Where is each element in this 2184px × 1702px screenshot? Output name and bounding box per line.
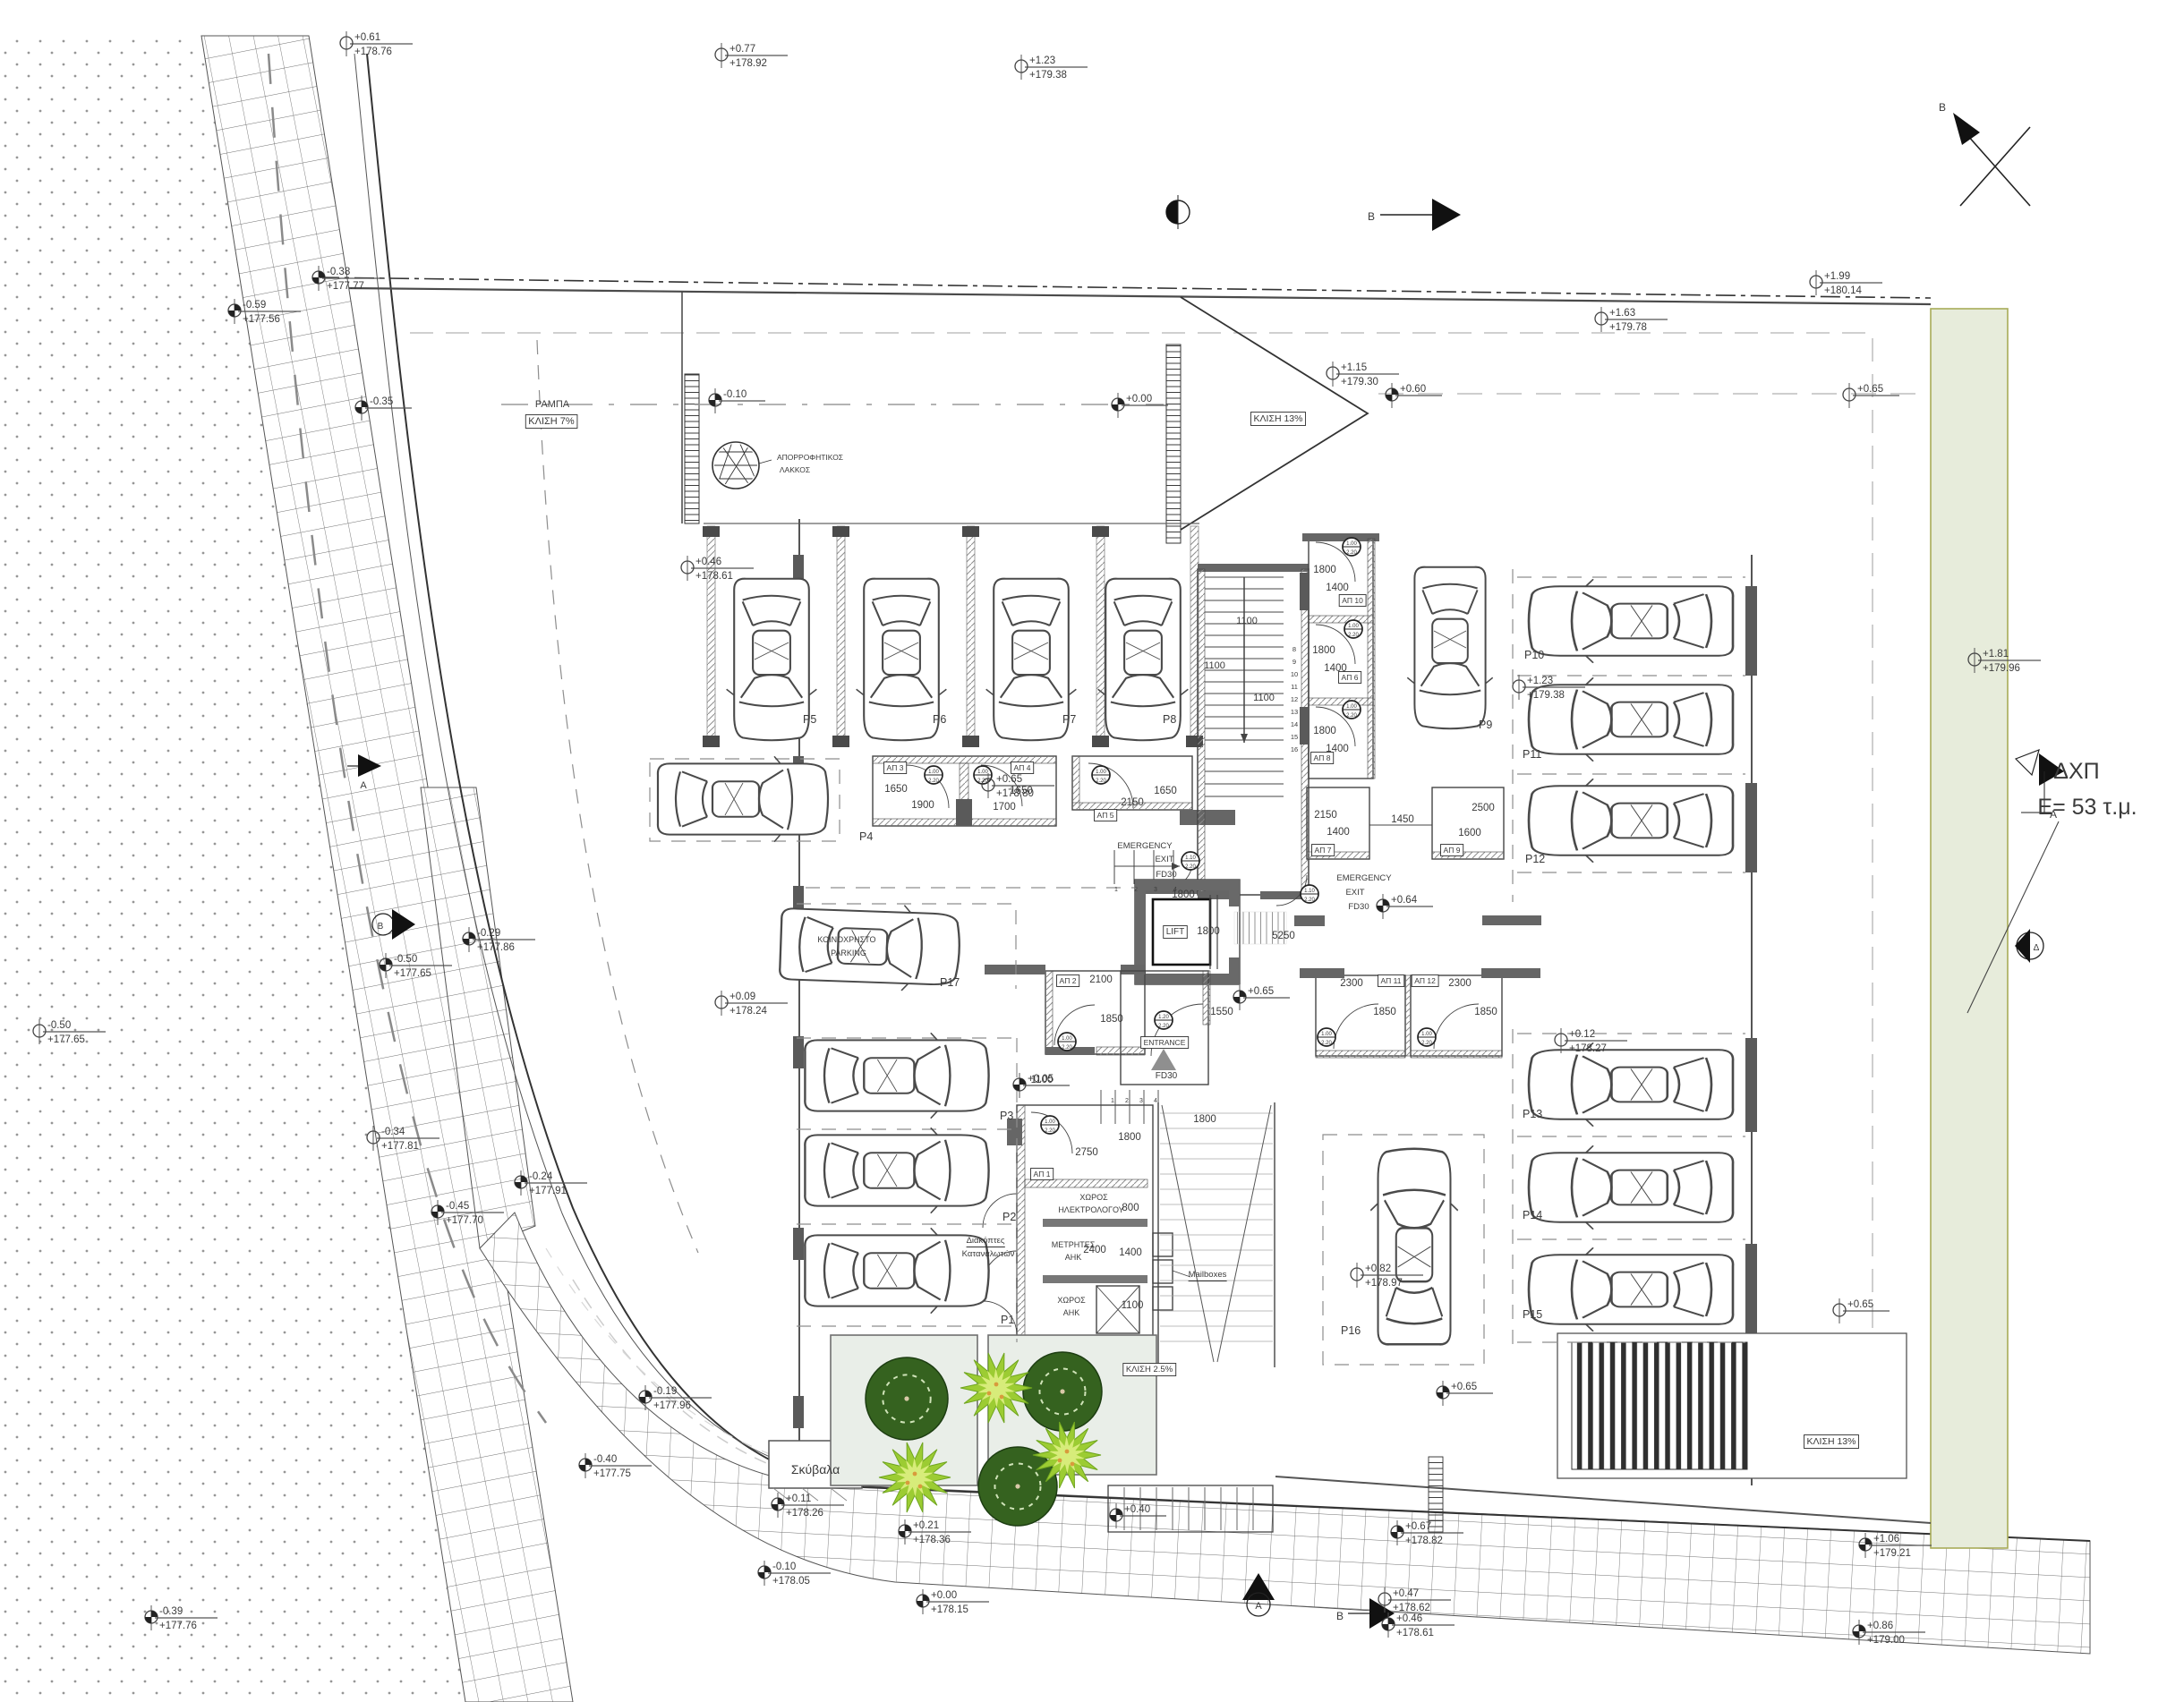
svg-text:A: A xyxy=(360,780,367,791)
plan-label: A xyxy=(360,780,367,791)
building-top-edge xyxy=(349,288,1931,304)
plan-label: 4 xyxy=(1173,887,1177,893)
svg-text:2300: 2300 xyxy=(1448,978,1472,989)
plan-label: ΧΩΡΟΣ xyxy=(1079,1193,1108,1202)
plan-label: ΑΠ 4 xyxy=(1011,762,1034,774)
tree-icon xyxy=(978,1447,1057,1526)
section-flag-top-b xyxy=(1380,199,1461,231)
parking-spot-label: P6 xyxy=(933,713,946,726)
plan-label: 1700 xyxy=(993,802,1016,813)
level-value: -0.39 xyxy=(159,1606,183,1617)
level-elevation: +178.61 xyxy=(695,571,733,582)
svg-text:ΚΛΙΣΗ 13%: ΚΛΙΣΗ 13% xyxy=(1807,1436,1856,1447)
svg-text:1650: 1650 xyxy=(1154,786,1177,796)
svg-text:ΑΠ 10: ΑΠ 10 xyxy=(1342,596,1363,605)
svg-text:Α: Α xyxy=(2050,808,2057,821)
svg-text:ΑΠ 12: ΑΠ 12 xyxy=(1414,976,1436,985)
svg-text:2300: 2300 xyxy=(1340,978,1363,989)
level-value: +0.47 xyxy=(1393,1588,1419,1599)
level-marker: +0.00+178.15 xyxy=(917,1589,989,1615)
svg-text:800: 800 xyxy=(1122,1203,1139,1213)
parked-car xyxy=(1529,579,1733,662)
parking-spot-label: P8 xyxy=(1163,713,1176,726)
plan-label: ΚΛΙΣΗ 13% xyxy=(1251,413,1306,426)
level-elevation: +177.65 xyxy=(394,968,431,979)
level-marker: -0.10 xyxy=(709,388,765,413)
tree-icon xyxy=(1023,1352,1102,1431)
svg-text:2.20: 2.20 xyxy=(1346,550,1357,556)
svg-text:1450: 1450 xyxy=(1391,814,1414,825)
svg-text:ΧΩΡΟΣ: ΧΩΡΟΣ xyxy=(1057,1296,1086,1305)
plan-label: Σκύβαλα xyxy=(791,1462,840,1476)
svg-text:Β: Β xyxy=(1939,101,1946,114)
svg-text:1.10: 1.10 xyxy=(1185,855,1196,861)
svg-text:1600: 1600 xyxy=(1458,828,1481,838)
parking-spot-label: P14 xyxy=(1523,1209,1542,1221)
svg-text:1800: 1800 xyxy=(1313,565,1336,575)
tree-icon xyxy=(866,1357,948,1440)
door-size-marker: 1.002.20 xyxy=(1343,701,1361,719)
svg-text:2: 2 xyxy=(1125,1098,1129,1104)
level-value: -0.38 xyxy=(327,267,350,277)
svg-text:ΑΗΚ: ΑΗΚ xyxy=(1065,1253,1082,1262)
plan-label: FD30 xyxy=(1156,870,1176,880)
level-value: +0.11 xyxy=(786,1494,811,1504)
plan-label: 3 xyxy=(1139,1098,1143,1104)
door-size-marker: 1.002.20 xyxy=(1344,620,1362,638)
svg-text:ΡΑΜΠΑ: ΡΑΜΠΑ xyxy=(535,399,570,410)
svg-text:1550: 1550 xyxy=(1210,1007,1233,1017)
level-marker: +0.61+178.76 xyxy=(340,31,413,57)
plan-label: 3 xyxy=(1154,887,1157,893)
level-elevation: +179.00 xyxy=(1867,1635,1905,1646)
parked-car xyxy=(805,1228,988,1313)
plan-label: FD30 xyxy=(1348,902,1369,912)
plan-label: 16 xyxy=(1291,745,1298,753)
plan-label: 1650 xyxy=(1010,786,1033,796)
parking-spot-label: P3 xyxy=(1000,1110,1013,1122)
level-value: -0.40 xyxy=(593,1454,617,1465)
parked-car xyxy=(658,756,828,841)
svg-text:1400: 1400 xyxy=(1326,583,1349,593)
level-elevation: +178.82 xyxy=(1405,1536,1443,1546)
plan-label: B xyxy=(1368,210,1375,223)
level-marker: +0.65 xyxy=(1833,1298,1890,1323)
svg-text:ΚΛΙΣΗ 7%: ΚΛΙΣΗ 7% xyxy=(528,416,575,427)
level-elevation: +180.14 xyxy=(1824,285,1862,296)
svg-text:13: 13 xyxy=(1291,708,1298,716)
svg-text:1.00: 1.00 xyxy=(928,770,939,775)
plan-label: EMERGENCY xyxy=(1336,873,1392,883)
plan-label: 1550 xyxy=(1210,1007,1233,1017)
svg-text:ΚΛΙΣΗ 2.5%: ΚΛΙΣΗ 2.5% xyxy=(1126,1365,1173,1374)
svg-text:1100: 1100 xyxy=(1236,616,1258,626)
floor-plan-sheet: 1.002.201.002.201.002.201.002.201.002.20… xyxy=(0,0,2184,1702)
svg-text:2500: 2500 xyxy=(1472,803,1495,813)
svg-text:1800: 1800 xyxy=(1313,726,1336,736)
plan-label: 1850 xyxy=(1373,1007,1396,1017)
svg-text:ΑΠ 9: ΑΠ 9 xyxy=(1444,846,1461,855)
svg-text:1800: 1800 xyxy=(1312,645,1335,656)
level-value: +1.99 xyxy=(1824,271,1850,282)
pit-leader xyxy=(759,460,772,464)
svg-text:2400: 2400 xyxy=(1083,1245,1106,1255)
level-elevation: +177.76 xyxy=(159,1621,197,1631)
svg-text:A: A xyxy=(1255,1601,1262,1612)
svg-text:ΑΠ 4: ΑΠ 4 xyxy=(1014,763,1031,772)
parked-car xyxy=(1529,779,1733,862)
plan-label: 2500 xyxy=(1472,803,1495,813)
level-value: +0.60 xyxy=(1400,384,1426,395)
plan-label: 1800 xyxy=(1197,926,1220,937)
plan-label: 1 xyxy=(1111,1098,1114,1104)
level-marker: +1.15+179.30 xyxy=(1327,362,1399,387)
plan-label: 1100 xyxy=(1204,660,1225,671)
level-elevation: +179.78 xyxy=(1609,322,1647,333)
plan-label: ΗΛΕΚΤΡΟΛΟΓΟΥ xyxy=(1058,1205,1123,1214)
level-marker: +1.63+179.78 xyxy=(1595,307,1668,333)
level-value: -0.50 xyxy=(394,954,417,965)
level-value: +0.61 xyxy=(354,32,380,43)
svg-text:1.00: 1.00 xyxy=(1348,624,1359,629)
svg-text:ΑΠ 11: ΑΠ 11 xyxy=(1381,976,1402,985)
level-value: -0.34 xyxy=(381,1127,405,1137)
parking-spot-label: P1 xyxy=(1001,1314,1014,1326)
svg-text:1400: 1400 xyxy=(1119,1247,1142,1258)
plan-label: 1100 xyxy=(1031,1075,1054,1085)
plan-label: 1650 xyxy=(884,784,908,795)
svg-text:1.00: 1.00 xyxy=(1045,1119,1055,1125)
svg-text:1650: 1650 xyxy=(884,784,908,795)
stair-core xyxy=(1198,564,1309,899)
plan-label: ΑΠ 2 xyxy=(1057,975,1079,987)
plan-label: ΑΠ 9 xyxy=(1441,845,1463,856)
svg-text:ΛΑΚΚΟΣ: ΛΑΚΚΟΣ xyxy=(780,465,810,474)
level-elevation: +177.86 xyxy=(477,942,515,953)
plan-label: 9 xyxy=(1292,658,1296,666)
level-elevation: +178.15 xyxy=(931,1604,968,1615)
plan-label: ΚΟΙΝΟΧΡΗΣΤΟ xyxy=(817,935,875,944)
plan-label: 5250 xyxy=(1272,931,1295,941)
level-marker: +0.46+178.61 xyxy=(681,556,754,582)
plan-label: ΑΠ 5 xyxy=(1095,810,1117,821)
svg-text:9: 9 xyxy=(1292,658,1296,666)
level-value: -0.19 xyxy=(653,1386,677,1397)
svg-text:EMERGENCY: EMERGENCY xyxy=(1117,841,1173,851)
svg-text:ΚΟΙΝΟΧΡΗΣΤΟ: ΚΟΙΝΟΧΡΗΣΤΟ xyxy=(817,935,875,944)
plan-label: EXIT xyxy=(1345,888,1364,898)
svg-text:3: 3 xyxy=(1154,887,1157,893)
plan-label: 1600 xyxy=(1458,828,1481,838)
svg-text:ΚΛΙΣΗ 13%: ΚΛΙΣΗ 13% xyxy=(1254,413,1303,424)
plan-label: ΡΑΜΠΑ xyxy=(535,399,570,410)
svg-text:1650: 1650 xyxy=(1010,786,1033,796)
door-size-marker: 1.102.20 xyxy=(1301,885,1318,903)
svg-text:ENTRANCE: ENTRANCE xyxy=(1144,1038,1186,1047)
plan-label: ΑΠ 10 xyxy=(1339,595,1366,607)
level-marker: +1.23+179.38 xyxy=(1015,55,1088,81)
level-value: +0.65 xyxy=(1248,986,1274,997)
svg-text:11: 11 xyxy=(1291,683,1298,691)
level-marker: -0.19+177.96 xyxy=(639,1385,712,1411)
level-value: +0.64 xyxy=(1391,895,1418,906)
svg-text:2.20: 2.20 xyxy=(928,779,939,784)
svg-text:2.20: 2.20 xyxy=(1321,1041,1332,1046)
door-size-marker: 1.002.20 xyxy=(1318,1028,1335,1046)
svg-text:1800: 1800 xyxy=(1193,1114,1216,1125)
north-arrow-icon xyxy=(1953,113,2030,206)
plan-label: 1400 xyxy=(1327,827,1350,838)
plan-label: 1850 xyxy=(1100,1014,1123,1025)
plan-label: ΚΛΙΣΗ 13% xyxy=(1804,1435,1859,1449)
plan-label: 4 xyxy=(1154,1098,1157,1104)
level-value: +0.00 xyxy=(931,1590,957,1601)
parked-car xyxy=(1529,1247,1733,1331)
svg-text:2150: 2150 xyxy=(1314,810,1337,821)
svg-text:2100: 2100 xyxy=(1089,974,1113,985)
plan-label: Καταναλωτών xyxy=(962,1249,1015,1259)
level-elevation: +178.24 xyxy=(729,1006,767,1017)
plan-label: ΑΗΚ xyxy=(1065,1253,1082,1262)
plan-label: 2300 xyxy=(1340,978,1363,989)
level-value: -0.24 xyxy=(529,1171,553,1182)
plan-label: 2300 xyxy=(1448,978,1472,989)
level-elevation: +179.38 xyxy=(1527,690,1565,701)
level-marker: +0.46+178.61 xyxy=(1382,1613,1455,1638)
svg-text:16: 16 xyxy=(1291,745,1298,753)
property-line-top xyxy=(320,277,1931,298)
plan-label: ΑΠ 11 xyxy=(1378,975,1404,987)
svg-text:1.20: 1.20 xyxy=(1158,1015,1169,1020)
level-elevation: +179.38 xyxy=(1029,70,1067,81)
plan-label: Α xyxy=(2050,808,2057,821)
level-marker: +0.65 xyxy=(1843,383,1899,408)
svg-text:ΑΠ 3: ΑΠ 3 xyxy=(887,763,904,772)
plan-label: Διακόπτες xyxy=(967,1236,1005,1247)
plan-label: 2400 xyxy=(1083,1245,1106,1255)
level-value: +0.65 xyxy=(1847,1299,1873,1310)
svg-text:ΗΛΕΚΤΡΟΛΟΓΟΥ: ΗΛΕΚΤΡΟΛΟΓΟΥ xyxy=(1058,1205,1123,1214)
svg-text:1: 1 xyxy=(1111,1098,1114,1104)
parking-spot-label: P16 xyxy=(1341,1324,1361,1337)
level-value: +0.65 xyxy=(1451,1382,1477,1392)
plan-label: 13 xyxy=(1291,708,1298,716)
parking-spot-label: P10 xyxy=(1524,649,1544,661)
ramp-hatch-right xyxy=(1166,345,1181,543)
level-marker: +0.00 xyxy=(1112,393,1168,418)
plan-label: 10 xyxy=(1291,670,1298,678)
level-marker: +0.77+178.92 xyxy=(715,43,788,69)
parked-car xyxy=(1529,1145,1733,1229)
level-value: +1.63 xyxy=(1609,308,1635,319)
level-elevation: +178.36 xyxy=(913,1535,951,1545)
level-value: -0.10 xyxy=(772,1562,796,1572)
plan-label: 1900 xyxy=(911,800,934,811)
ramp-hatch-left xyxy=(685,374,699,523)
svg-text:FD30: FD30 xyxy=(1156,870,1176,880)
ventilation-grille xyxy=(1557,1333,1907,1478)
svg-text:ΑΠ 1: ΑΠ 1 xyxy=(1034,1170,1051,1179)
level-elevation: +178.27 xyxy=(1569,1043,1607,1054)
door-size-marker: 1.002.20 xyxy=(1041,1116,1059,1134)
svg-text:2.20: 2.20 xyxy=(1062,1045,1072,1051)
plan-label: LIFT xyxy=(1164,926,1188,939)
plan-label: 1400 xyxy=(1326,583,1349,593)
svg-text:2750: 2750 xyxy=(1075,1147,1098,1158)
plan-label: ΚΛΙΣΗ 7% xyxy=(525,415,577,429)
plan-label: Β xyxy=(1939,101,1946,114)
svg-text:3: 3 xyxy=(1139,1098,1143,1104)
level-value: -0.59 xyxy=(243,300,266,311)
plan-label: 2100 xyxy=(1089,974,1113,985)
parked-car xyxy=(780,901,961,992)
level-value: +0.40 xyxy=(1124,1504,1150,1515)
level-elevation: +179.21 xyxy=(1873,1548,1911,1559)
svg-text:1800: 1800 xyxy=(1197,926,1220,937)
svg-text:ΑΠ 7: ΑΠ 7 xyxy=(1315,846,1332,855)
parking-spot-label: P7 xyxy=(1062,713,1076,726)
level-elevation: +177.81 xyxy=(381,1141,419,1152)
plan-label: 14 xyxy=(1291,720,1298,728)
svg-text:Διακόπτες: Διακόπτες xyxy=(967,1236,1005,1246)
svg-text:2.20: 2.20 xyxy=(1158,1024,1169,1029)
plan-label: 2 xyxy=(1125,1098,1129,1104)
door-size-marker: 1.102.20 xyxy=(1182,852,1199,870)
pedestrian-ramp xyxy=(1158,1102,1275,1367)
plan-label: 1850 xyxy=(1474,1007,1497,1017)
parking-spot-label: P9 xyxy=(1479,719,1492,731)
level-value: +0.65 xyxy=(996,774,1022,785)
plan-label: 12 xyxy=(1291,695,1298,703)
plan-label: ΑΠ 12 xyxy=(1412,975,1438,987)
plan-label: 1450 xyxy=(1391,814,1414,825)
svg-text:1900: 1900 xyxy=(911,800,934,811)
door-size-marker: 1.002.20 xyxy=(1092,766,1110,784)
plan-label: ΛΑΚΚΟΣ xyxy=(780,465,810,474)
parked-car xyxy=(805,1128,988,1213)
svg-text:2.20: 2.20 xyxy=(1304,898,1315,903)
svg-text:1850: 1850 xyxy=(1373,1007,1396,1017)
level-value: +0.82 xyxy=(1365,1264,1391,1274)
svg-text:2.20: 2.20 xyxy=(1185,864,1196,870)
plan-label: 1800 xyxy=(1313,565,1336,575)
level-value: +0.65 xyxy=(1857,384,1883,395)
svg-text:1.00: 1.00 xyxy=(1321,1032,1332,1037)
svg-text:1.00: 1.00 xyxy=(1346,541,1357,547)
svg-text:1400: 1400 xyxy=(1327,827,1350,838)
parking-spot-label: P15 xyxy=(1523,1308,1542,1321)
level-elevation: +178.97 xyxy=(1365,1278,1403,1289)
plan-label: ΑΠ 8 xyxy=(1311,753,1334,764)
svg-text:12: 12 xyxy=(1291,695,1298,703)
svg-text:1: 1 xyxy=(1114,887,1118,893)
svg-text:1.00: 1.00 xyxy=(1096,770,1106,775)
svg-text:Καταναλωτών: Καταναλωτών xyxy=(962,1249,1015,1259)
plan-label: 800 xyxy=(1122,1203,1139,1213)
svg-text:ΑΠ 2: ΑΠ 2 xyxy=(1060,976,1077,985)
building xyxy=(501,292,1931,1532)
level-elevation: +177.65 xyxy=(47,1034,85,1045)
svg-text:EXIT: EXIT xyxy=(1155,855,1173,864)
parking-spot-label: P13 xyxy=(1523,1108,1542,1120)
svg-text:1100: 1100 xyxy=(1031,1075,1054,1085)
plan-label: 1800 xyxy=(1313,726,1336,736)
plan-label: ΑΗΚ xyxy=(1063,1308,1080,1317)
plan-label: 1400 xyxy=(1119,1247,1142,1258)
svg-text:B: B xyxy=(1368,210,1375,223)
level-elevation: +178.61 xyxy=(1396,1628,1434,1638)
level-value: +0.12 xyxy=(1569,1029,1595,1040)
level-value: -0.10 xyxy=(723,389,746,400)
level-marker: +0.65 xyxy=(1233,985,1290,1010)
parked-car xyxy=(1370,1149,1458,1345)
svg-text:10: 10 xyxy=(1291,670,1298,678)
svg-text:ΑΠ 8: ΑΠ 8 xyxy=(1314,753,1331,762)
level-elevation: +178.76 xyxy=(354,47,392,57)
level-value: +0.46 xyxy=(1396,1613,1422,1624)
plan-label: 2 xyxy=(1134,887,1138,893)
svg-text:FD30: FD30 xyxy=(1348,902,1369,912)
plan-label: FD30 xyxy=(1156,1071,1178,1081)
level-elevation: +178.62 xyxy=(1393,1603,1430,1613)
svg-text:1.00: 1.00 xyxy=(977,770,988,775)
svg-text:4: 4 xyxy=(1154,1098,1157,1104)
svg-text:FD30: FD30 xyxy=(1156,1071,1178,1081)
level-value: -0.50 xyxy=(47,1020,71,1031)
plan-label: 1800 xyxy=(1193,1114,1216,1125)
plan-label: Mailboxes xyxy=(1189,1270,1227,1281)
svg-text:2.20: 2.20 xyxy=(1096,779,1106,784)
svg-text:LIFT: LIFT xyxy=(1166,927,1185,937)
door-size-marker: 1.002.20 xyxy=(925,766,943,784)
level-marker: -0.40+177.75 xyxy=(579,1453,652,1479)
level-value: +0.46 xyxy=(695,557,721,567)
level-elevation: +178.92 xyxy=(729,58,767,69)
parking-spot-label: P5 xyxy=(803,713,816,726)
svg-text:EXIT: EXIT xyxy=(1345,888,1364,898)
level-elevation: +178.05 xyxy=(772,1576,810,1587)
svg-text:ΔΧΠ: ΔΧΠ xyxy=(2053,759,2099,784)
level-elevation: +179.30 xyxy=(1341,377,1378,387)
door-size-marker: 1.002.20 xyxy=(1418,1028,1436,1046)
svg-text:1.00: 1.00 xyxy=(1346,704,1357,710)
svg-text:8: 8 xyxy=(1292,645,1296,653)
svg-text:2.20: 2.20 xyxy=(1346,713,1357,719)
svg-text:5250: 5250 xyxy=(1272,931,1295,941)
plan-label: ΑΠΟΡΡΟΦΗΤΙΚΟΣ xyxy=(777,453,843,462)
level-value: -0.45 xyxy=(446,1201,469,1212)
door-size-marker: 1.202.20 xyxy=(1155,1011,1173,1029)
plan-label: 11 xyxy=(1291,683,1298,691)
door-size-marker: 1.002.20 xyxy=(1058,1033,1076,1051)
plan-label: ΚΛΙΣΗ 2.5% xyxy=(1123,1364,1176,1376)
svg-text:1.10: 1.10 xyxy=(1304,889,1315,894)
level-elevation: +177.96 xyxy=(653,1400,691,1411)
svg-text:15: 15 xyxy=(1291,733,1298,741)
level-value: +1.06 xyxy=(1873,1534,1899,1545)
door-size-marker: 1.002.20 xyxy=(1343,538,1361,556)
section-symbol-top xyxy=(1166,195,1190,229)
parking-spot-label: P17 xyxy=(940,976,960,989)
svg-text:2.20: 2.20 xyxy=(1045,1128,1055,1134)
svg-text:4: 4 xyxy=(1173,887,1177,893)
plan-label: 1 xyxy=(1114,887,1118,893)
level-value: +1.23 xyxy=(1527,676,1553,686)
parked-car xyxy=(805,1033,988,1118)
level-elevation: +177.91 xyxy=(529,1186,567,1196)
plan-label: EXIT xyxy=(1155,855,1173,864)
site-plan-svg: 1.002.201.002.201.002.201.002.201.002.20… xyxy=(0,0,2184,1702)
